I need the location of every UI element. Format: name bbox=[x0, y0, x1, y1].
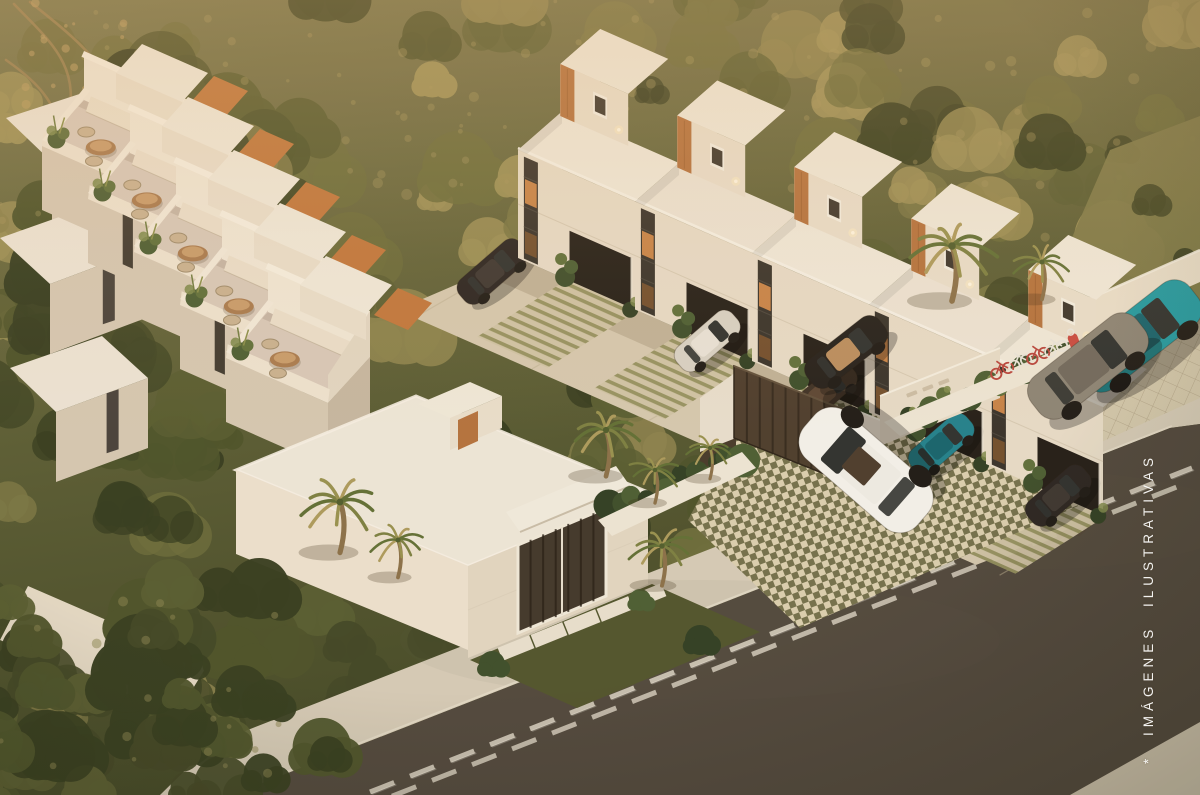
watermark-text: * IMÁGENES ILUSTRATIVAS bbox=[1141, 453, 1157, 764]
architectural-render bbox=[0, 0, 1200, 795]
architectural-render-stage: * IMÁGENES ILUSTRATIVAS bbox=[0, 0, 1200, 795]
